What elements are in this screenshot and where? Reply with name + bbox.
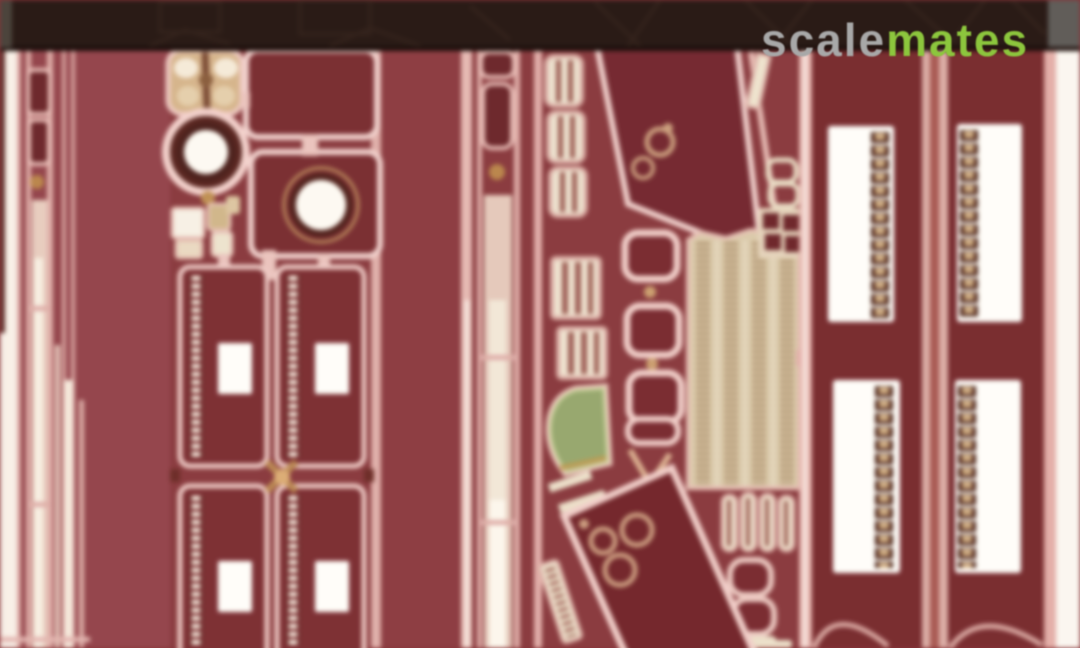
svg-text:scalemates: scalemates: [761, 14, 1029, 66]
